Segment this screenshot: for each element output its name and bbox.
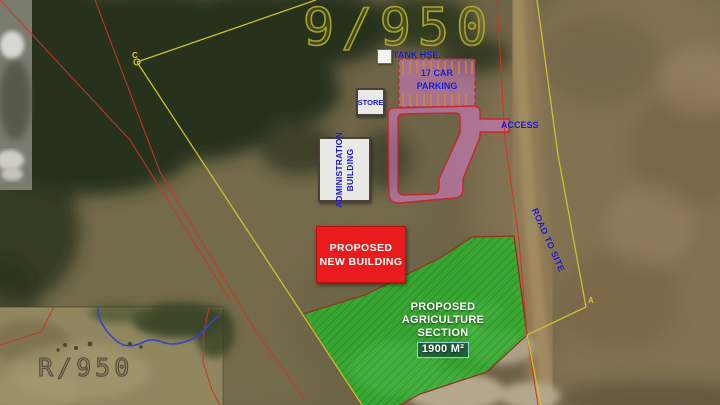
plan-overlay (0, 0, 720, 405)
site-plan-canvas: STORE ADMINISTRATION BUILDING PROPOSED N… (0, 0, 720, 405)
parking-label: 17 CAR PARKING (399, 67, 475, 93)
agriculture-label-line1: PROPOSED (378, 301, 508, 314)
corner-marker-a: A (588, 297, 594, 305)
adjacent-lot-number-label: R/950 (38, 355, 133, 380)
administration-building: ADMINISTRATION BUILDING (318, 137, 371, 202)
lot-number-label: 9/950 (303, 2, 495, 54)
store-building: STORE (356, 88, 385, 116)
agriculture-label-line2: AGRICULTURE (378, 314, 508, 327)
administration-label: ADMINISTRATION BUILDING (334, 132, 356, 208)
corner-marker-c: C (132, 52, 138, 60)
creek-line (98, 308, 220, 346)
proposed-building-label-line1: PROPOSED (330, 241, 393, 255)
agriculture-area-badge: 1900 M² (417, 342, 469, 358)
agriculture-label: PROPOSED AGRICULTURE SECTION 1900 M² (378, 301, 508, 358)
proposed-building-label-line2: NEW BUILDING (320, 255, 403, 269)
proposed-new-building: PROPOSED NEW BUILDING (316, 226, 406, 283)
access-label: ACCESS (501, 120, 539, 130)
agriculture-label-line3: SECTION (378, 327, 508, 340)
store-label: STORE (358, 98, 384, 107)
driveway-loop (388, 106, 509, 203)
tank-house-label: TANK HSE. (393, 50, 441, 60)
